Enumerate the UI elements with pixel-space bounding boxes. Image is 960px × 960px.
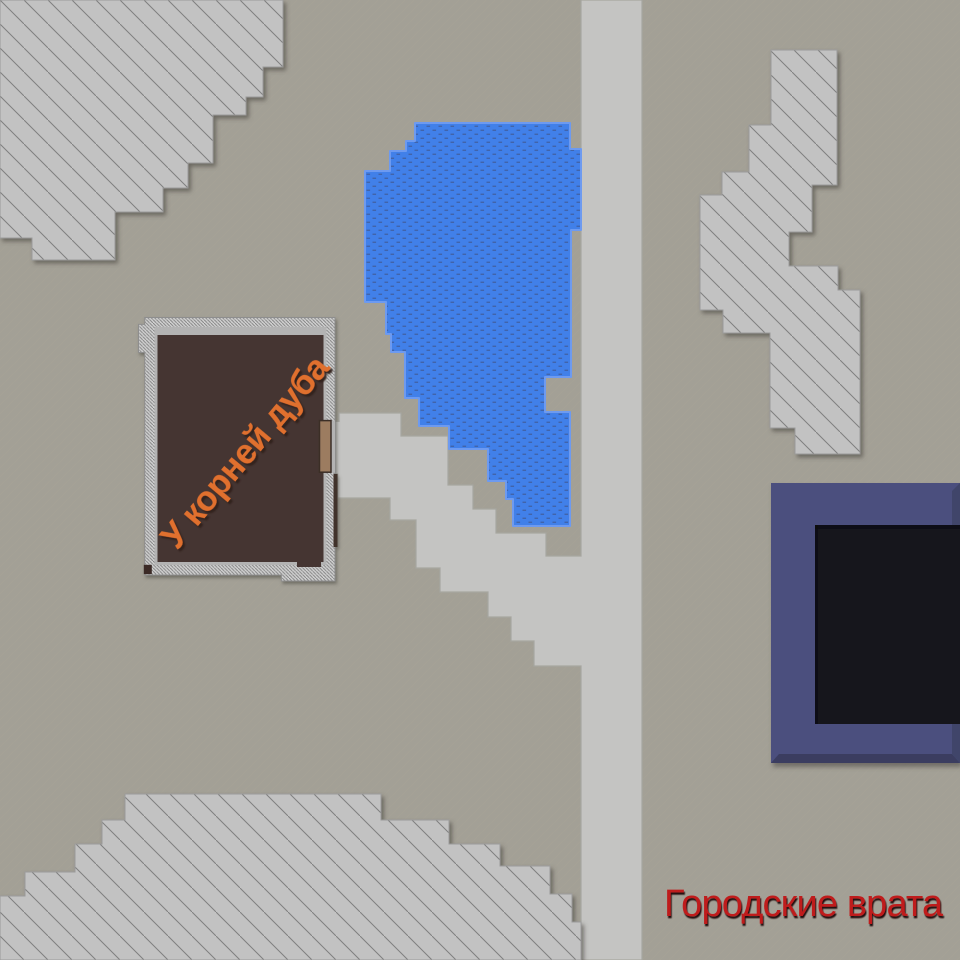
- svg-text:Городские врата: Городские врата: [664, 883, 944, 925]
